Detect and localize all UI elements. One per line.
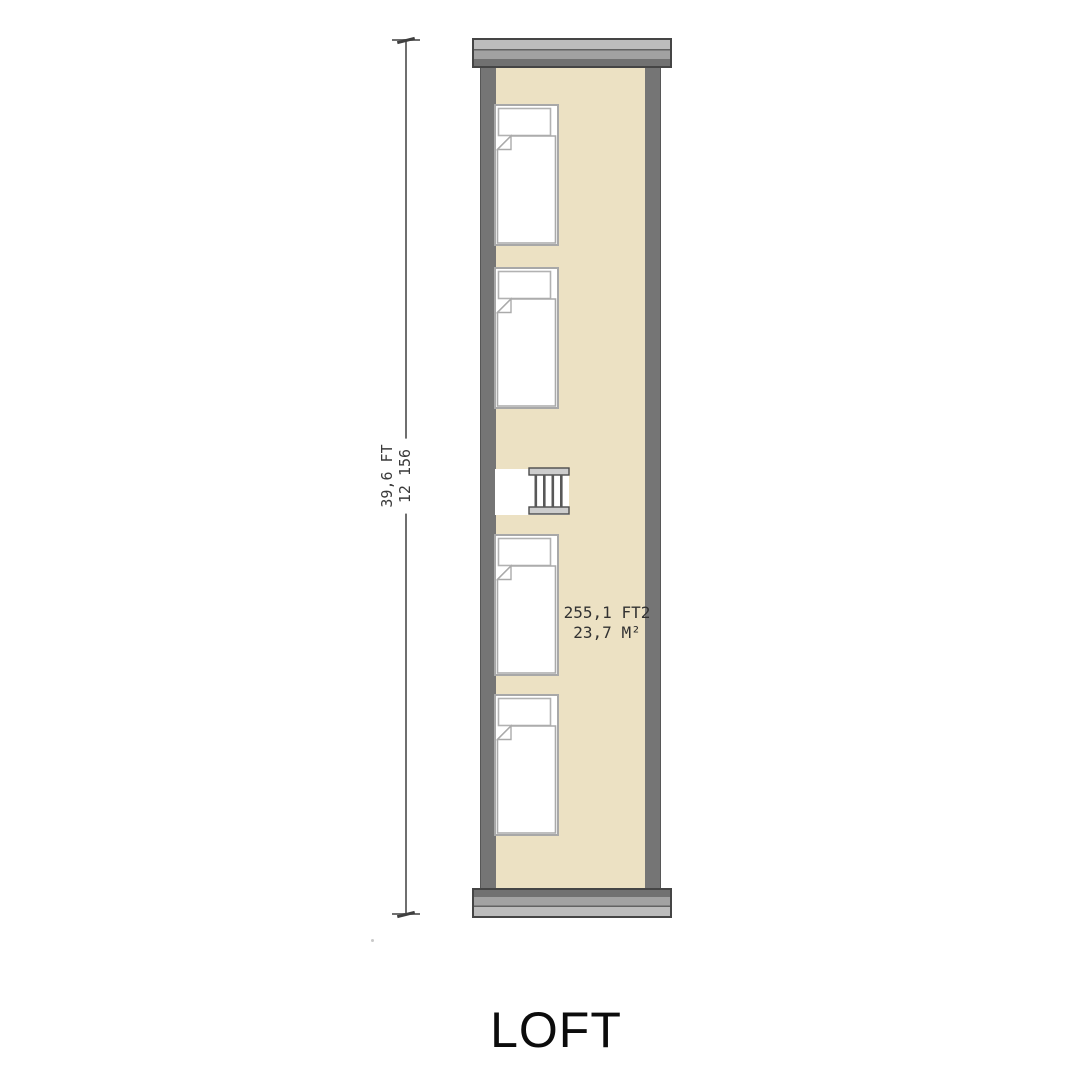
stray-mark bbox=[371, 939, 374, 942]
dimension-label: 39,6 FT 12 156 bbox=[377, 438, 415, 513]
dimension-millimeters-value: 12 156 bbox=[396, 444, 414, 507]
plan-title: LOFT bbox=[490, 1001, 622, 1059]
container-end-wall-top bbox=[472, 38, 672, 68]
bed-icon bbox=[494, 694, 559, 836]
area-label: 255,1 FT2 23,7 M² bbox=[557, 603, 657, 643]
loft-ladder-icon bbox=[528, 467, 570, 515]
bed-icon bbox=[494, 267, 559, 409]
container-end-wall-bottom bbox=[472, 888, 672, 918]
wall-right bbox=[645, 62, 661, 892]
area-imperial-value: 255,1 FT2 bbox=[557, 603, 657, 623]
bed-icon bbox=[494, 534, 559, 676]
dimension-feet-value: 39,6 FT bbox=[378, 444, 396, 507]
bed-icon bbox=[494, 104, 559, 246]
area-metric-value: 23,7 M² bbox=[557, 623, 657, 643]
floor-plan-canvas: 39,6 FT 12 156 bbox=[0, 0, 1080, 1080]
